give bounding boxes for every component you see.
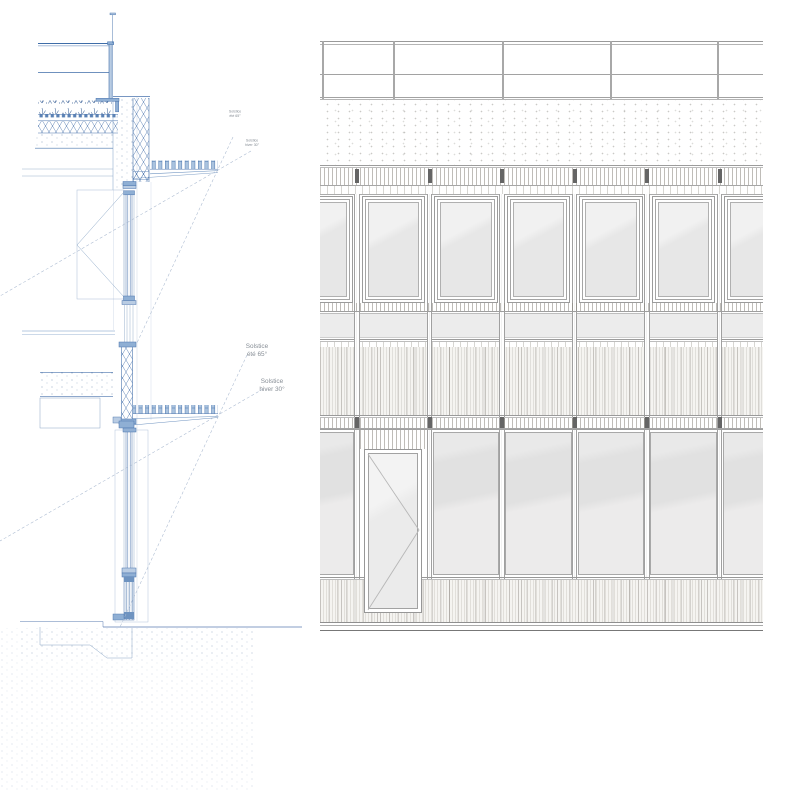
lower-glass-panel [578, 432, 645, 575]
upper-window-glass [440, 202, 492, 297]
mullion [572, 194, 578, 622]
louver-band-post [573, 417, 577, 428]
ground-line [320, 630, 763, 631]
railing-mid-rail [320, 74, 763, 75]
window-swing-lines [77, 192, 124, 297]
slat-band [320, 339, 763, 415]
louver-band-post [428, 417, 432, 428]
louver-band-post [500, 417, 504, 428]
upper-window [362, 196, 426, 303]
transom-line [320, 311, 763, 312]
upper-window-inner-frame [582, 199, 640, 300]
floor-slab [22, 331, 115, 428]
louver-band-line3 [320, 428, 763, 429]
architectural-drawing-sheet: Solsticeété 65° Solsticehiver 30° Solsti… [0, 0, 800, 800]
lower-glass-panel [433, 432, 500, 575]
railing-top-rail-inner [320, 44, 763, 45]
mullion [427, 194, 433, 622]
brise-band-post [718, 169, 722, 183]
brise-band-post [573, 169, 577, 183]
upper-window-inner-frame [320, 199, 350, 300]
floor-louver-band [320, 415, 763, 430]
spandrel-panel [505, 313, 572, 338]
mullion [499, 194, 505, 622]
annotation-solstice-summer-roof: Solsticeété 65° [224, 109, 246, 118]
transom-ticks [320, 303, 763, 311]
upper-window-inner-frame [655, 199, 713, 300]
railing-post [322, 41, 324, 99]
door-swing-lines [365, 450, 423, 614]
upper-window-section [77, 182, 136, 305]
upper-window-inner-frame [510, 199, 568, 300]
upper-window-glass [730, 202, 763, 297]
window-swing-box [77, 190, 124, 299]
spandrel-panel [360, 313, 427, 338]
annotation-solstice-winter-floor: Solsticehiver 30° [255, 378, 289, 395]
spandrel-panel [320, 313, 354, 338]
mullion [354, 194, 360, 622]
wall-section-drawing [0, 0, 310, 800]
upper-window-glass [368, 202, 420, 297]
lower-glass-panel [505, 432, 572, 575]
annotation-solstice-summer-floor: Solsticeété 65° [240, 343, 274, 360]
green-roof [38, 101, 118, 134]
spandrel-panel [432, 313, 499, 338]
lower-window-section [113, 428, 148, 622]
brise-band-ticks [320, 168, 763, 185]
louver-band-post [355, 417, 359, 428]
spandrel-panel [577, 313, 644, 338]
upper-window-glass [320, 202, 347, 297]
plinth-line [320, 622, 763, 623]
louver-band-ticks [320, 418, 763, 428]
spandrel-panel [722, 313, 763, 338]
louver-band-top-line [320, 415, 763, 416]
parapet-stipple-band [320, 100, 763, 166]
upper-window [320, 196, 353, 303]
brise-band-ticks-sparse [320, 186, 763, 194]
upper-window-glass [585, 202, 637, 297]
slat-band-top-line [320, 339, 763, 340]
upper-window [652, 196, 716, 303]
upper-window [507, 196, 571, 303]
facade-elevation [320, 41, 763, 633]
section-railing [38, 13, 116, 101]
lower-glass-panel [320, 432, 354, 575]
railing-post [717, 41, 719, 99]
brise-band-post [355, 169, 359, 183]
railing-bottom-rail [320, 97, 763, 98]
roof-brise-band [320, 165, 763, 194]
window-head-line [320, 194, 763, 195]
railing-post [610, 41, 612, 99]
upper-window [724, 196, 763, 303]
upper-window [434, 196, 498, 303]
railing-post [502, 41, 504, 99]
upper-window [579, 196, 643, 303]
brise-band-post [500, 169, 504, 183]
brise-band-post [428, 169, 432, 183]
brise-band-top-line [320, 165, 763, 166]
slat-texture [320, 347, 763, 415]
louver-band-post [645, 417, 649, 428]
roof-plants [38, 101, 112, 115]
upper-window-glass [513, 202, 565, 297]
ray-summer-floor [120, 355, 247, 627]
railing-top-rail [320, 41, 763, 42]
upper-transom-band [320, 303, 763, 313]
upper-window-inner-frame [365, 199, 423, 300]
brise-band-post [645, 169, 649, 183]
mullion [644, 194, 650, 622]
upper-window-inner-frame [437, 199, 495, 300]
entrance-door[interactable] [364, 449, 422, 613]
plinth-line2 [320, 625, 763, 626]
annotation-solstice-winter-roof: Solsticehiver 30° [241, 138, 263, 147]
door-head-band [360, 430, 427, 449]
spandrel-panel [650, 313, 717, 338]
lower-glass-panel [650, 432, 717, 575]
louver-band-post [718, 417, 722, 428]
upper-window-glass [658, 202, 710, 297]
upper-window-inner-frame [727, 199, 763, 300]
lower-glass-panel [723, 432, 764, 575]
railing-post [393, 41, 395, 99]
foundation [0, 622, 302, 793]
mullion [717, 194, 723, 622]
